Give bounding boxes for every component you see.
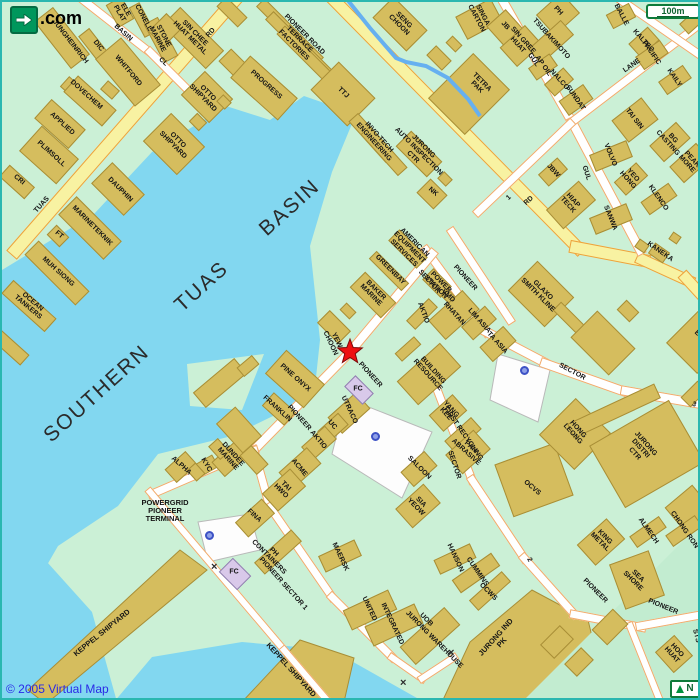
land-patch [442,590,608,700]
building [446,36,463,53]
road-segment [678,270,700,311]
water-label: SOUTHERN [40,341,154,447]
building [340,303,357,320]
logo-text: .com [40,8,82,29]
road-label: 1 [505,194,513,202]
poi-dot-icon[interactable] [205,531,214,540]
map-label: JURONG IND PK [477,617,520,663]
gate-marker-icon: × [448,647,454,659]
scale-bar: 100m [646,4,700,19]
logo[interactable]: .com [10,6,82,34]
map-label: FC [353,385,362,392]
water-label: BASIN [255,175,324,240]
building [540,625,574,659]
road-label: PIONEER [647,598,679,617]
poi-dot-icon[interactable] [371,432,380,441]
map-label: GREENBAY [374,254,407,287]
north-arrow-icon [676,685,684,693]
north-indicator: N [670,680,700,698]
building [617,300,640,323]
building [666,306,700,374]
map-label: PIONEER ROAD TERRACE FACTORIES [272,13,326,67]
map-label: FC [229,568,238,575]
map-label: STS [691,628,700,643]
poi-dot-icon[interactable] [520,366,529,375]
building [668,231,681,244]
road-segment [625,621,667,700]
water-label: TUAS [171,257,233,316]
building [564,647,594,677]
map-canvas[interactable]: SOUTHERNTUASBASINTUASRDBASINCLGULGULLANE… [0,0,700,700]
map-label: KEPPEL SHIPYARD [72,608,131,658]
building [0,328,30,365]
scale-label: 100m [657,7,688,17]
road-label: PIONEER [581,577,609,605]
logo-arrow-icon [10,6,38,34]
copyright-label: © 2005 Virtual Map [6,682,109,696]
gate-marker-icon: × [211,561,217,573]
map-label: POWERGRID PIONEER TERMINAL [141,499,188,523]
gate-marker-icon: × [400,677,406,689]
north-label: N [686,684,693,694]
map-label: KEPPEL SHIPYARD [265,641,318,698]
building [426,45,451,70]
